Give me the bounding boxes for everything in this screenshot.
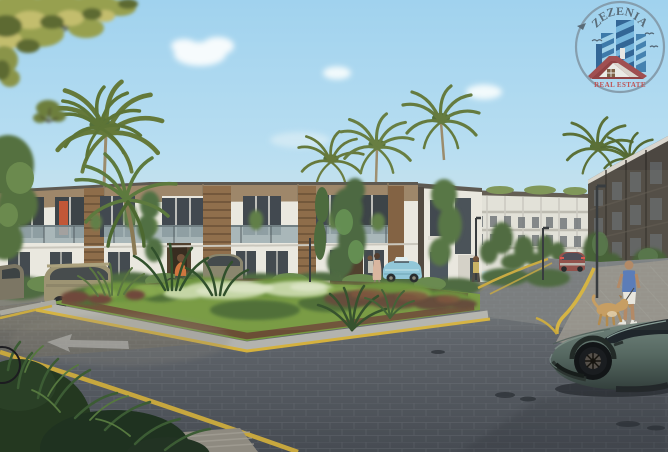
svg-text:E: E	[616, 4, 624, 18]
svg-text:REAL ESTATE: REAL ESTATE	[594, 81, 646, 89]
